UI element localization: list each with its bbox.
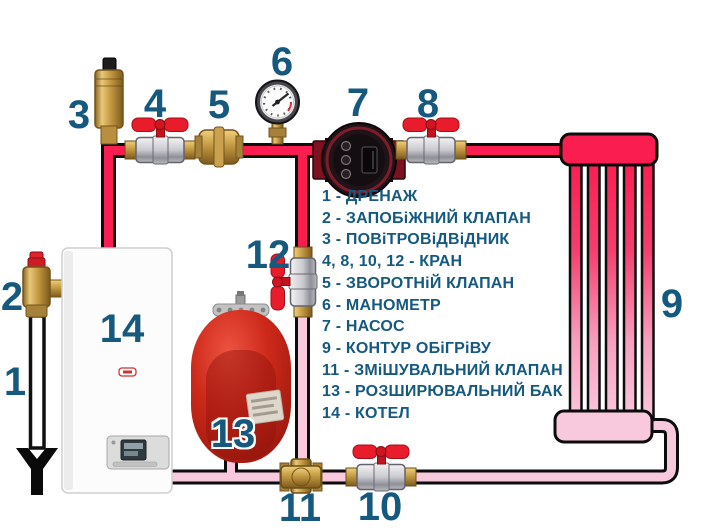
- label-9: 9: [661, 284, 683, 324]
- radiator-top-header: [561, 134, 657, 165]
- drain-arrow-icon: [16, 448, 58, 495]
- legend-item: 7 - НАСОС: [322, 316, 582, 338]
- label-4: 4: [144, 84, 166, 124]
- air-vent: [95, 58, 123, 144]
- legend: 1 - ДРЕНАЖ 2 - ЗАПОБіЖНИЙ КЛАПАН 3 - ПОВ…: [322, 186, 582, 425]
- drain-pipe: [31, 316, 45, 448]
- label-12: 12: [246, 235, 291, 275]
- label-1: 1: [4, 362, 26, 402]
- legend-item: 11 - ЗМіШУВАЛЬНИЙ КЛАПАН: [322, 360, 582, 382]
- drain: [16, 316, 58, 495]
- label-7: 7: [347, 83, 369, 123]
- legend-item: 14 - КОТЕЛ: [322, 403, 582, 425]
- label-14: 14: [100, 309, 145, 349]
- label-6: 6: [271, 42, 293, 82]
- label-2: 2: [1, 277, 23, 317]
- boiler-control-panel: [107, 436, 169, 469]
- pressure-gauge: [256, 81, 299, 145]
- safety-valve: [23, 252, 63, 317]
- legend-item: 4, 8, 10, 12 - КРАН: [322, 251, 582, 273]
- legend-item: 13 - РОЗШИРЮВАЛЬНИЙ БАК: [322, 381, 582, 403]
- label-8: 8: [417, 84, 439, 124]
- label-5: 5: [208, 85, 230, 125]
- legend-item: 2 - ЗАПОБіЖНИЙ КЛАПАН: [322, 208, 582, 230]
- check-valve: [195, 127, 243, 167]
- legend-item: 6 - МАНОМЕТР: [322, 295, 582, 317]
- heating-system-diagram: 1 2 3 4 5 6 7 8 9 10 11 12 13 14 1 - ДРЕ…: [0, 0, 704, 528]
- pump-display: [362, 147, 377, 173]
- boiler: [62, 248, 172, 493]
- legend-item: 1 - ДРЕНАЖ: [322, 186, 582, 208]
- legend-item: 9 - КОНТУР ОБіГРіВУ: [322, 338, 582, 360]
- label-10: 10: [358, 487, 403, 527]
- label-3: 3: [68, 95, 90, 135]
- legend-item: 5 - ЗВОРОТНіЙ КЛАПАН: [322, 273, 582, 295]
- legend-item: 3 - ПОВіТРОВіДВіДНИК: [322, 229, 582, 251]
- label-13: 13: [211, 414, 256, 454]
- label-11: 11: [279, 488, 321, 528]
